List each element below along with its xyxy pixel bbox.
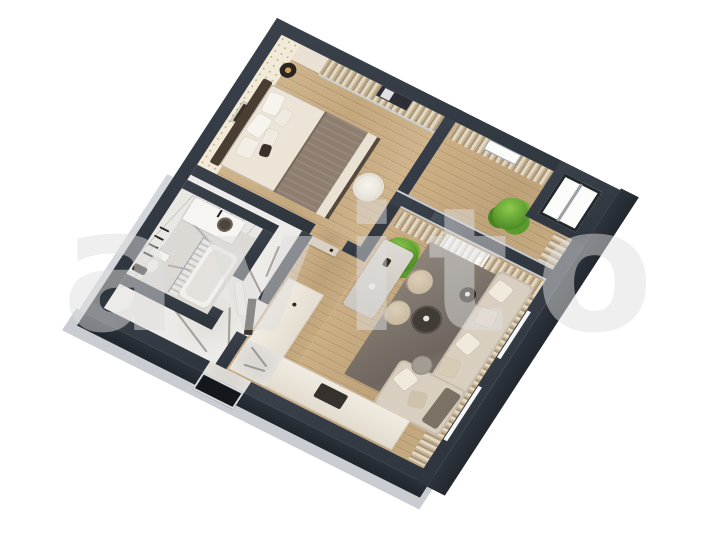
apartment-3d-plan: [85, 18, 620, 485]
floorplan-render: { "watermark": { "text": "avito" }, "sce…: [0, 0, 720, 540]
